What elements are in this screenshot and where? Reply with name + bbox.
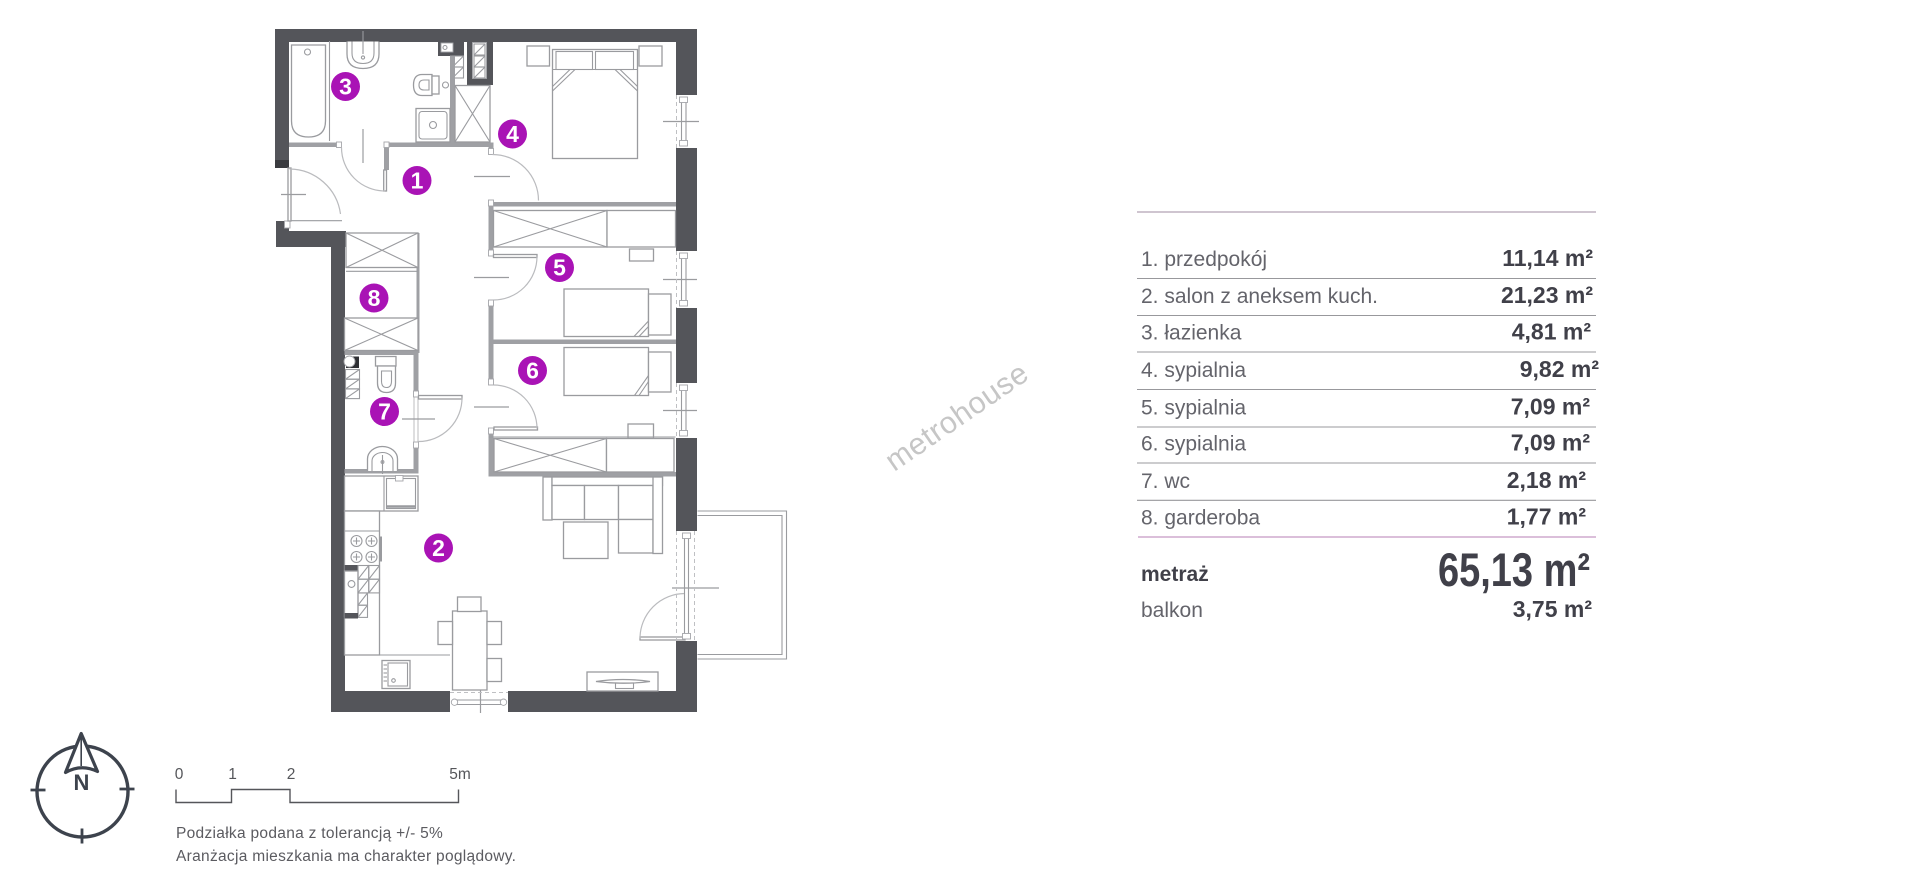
- svg-text:7,09 m²: 7,09 m²: [1511, 430, 1591, 456]
- svg-text:8. garderoba: 8. garderoba: [1141, 507, 1260, 530]
- svg-text:7: 7: [378, 399, 391, 425]
- svg-text:Podziałka podana z tolerancją: Podziałka podana z tolerancją +/- 5%: [176, 825, 443, 842]
- svg-text:3. łazienka: 3. łazienka: [1141, 322, 1242, 345]
- svg-text:11,14 m²: 11,14 m²: [1502, 245, 1593, 271]
- svg-text:N: N: [74, 770, 90, 795]
- svg-text:2: 2: [432, 535, 445, 561]
- svg-text:2,18 m²: 2,18 m²: [1507, 467, 1587, 493]
- svg-text:9,82 m²: 9,82 m²: [1520, 356, 1600, 382]
- svg-text:3,75 m²: 3,75 m²: [1513, 596, 1593, 622]
- svg-text:metraż: metraż: [1141, 563, 1209, 586]
- svg-text:4,81 m²: 4,81 m²: [1512, 319, 1592, 345]
- svg-text:balkon: balkon: [1141, 599, 1203, 622]
- svg-text:7. wc: 7. wc: [1141, 470, 1190, 493]
- svg-text:6: 6: [526, 358, 539, 384]
- svg-text:1. przedpokój: 1. przedpokój: [1141, 248, 1267, 271]
- svg-text:2: 2: [287, 766, 296, 783]
- svg-text:4. sypialnia: 4. sypialnia: [1141, 359, 1246, 382]
- svg-text:7,09 m²: 7,09 m²: [1511, 394, 1591, 420]
- svg-text:6. sypialnia: 6. sypialnia: [1141, 433, 1246, 456]
- svg-text:5. sypialnia: 5. sypialnia: [1141, 397, 1246, 420]
- svg-text:21,23 m²: 21,23 m²: [1501, 282, 1593, 308]
- svg-text:65,13 m²: 65,13 m²: [1438, 543, 1590, 596]
- svg-text:4: 4: [506, 121, 519, 147]
- svg-text:5m: 5m: [449, 766, 471, 783]
- svg-text:2. salon z aneksem kuch.: 2. salon z aneksem kuch.: [1141, 285, 1378, 308]
- svg-text:5: 5: [553, 255, 566, 281]
- svg-text:8: 8: [368, 285, 381, 311]
- svg-text:3: 3: [339, 74, 352, 100]
- svg-text:1: 1: [228, 766, 237, 783]
- svg-text:1,77 m²: 1,77 m²: [1507, 504, 1587, 530]
- svg-text:0: 0: [175, 766, 184, 783]
- svg-text:1: 1: [411, 168, 424, 194]
- svg-text:Aranżacja mieszkania ma charak: Aranżacja mieszkania ma charakter pogląd…: [176, 848, 516, 865]
